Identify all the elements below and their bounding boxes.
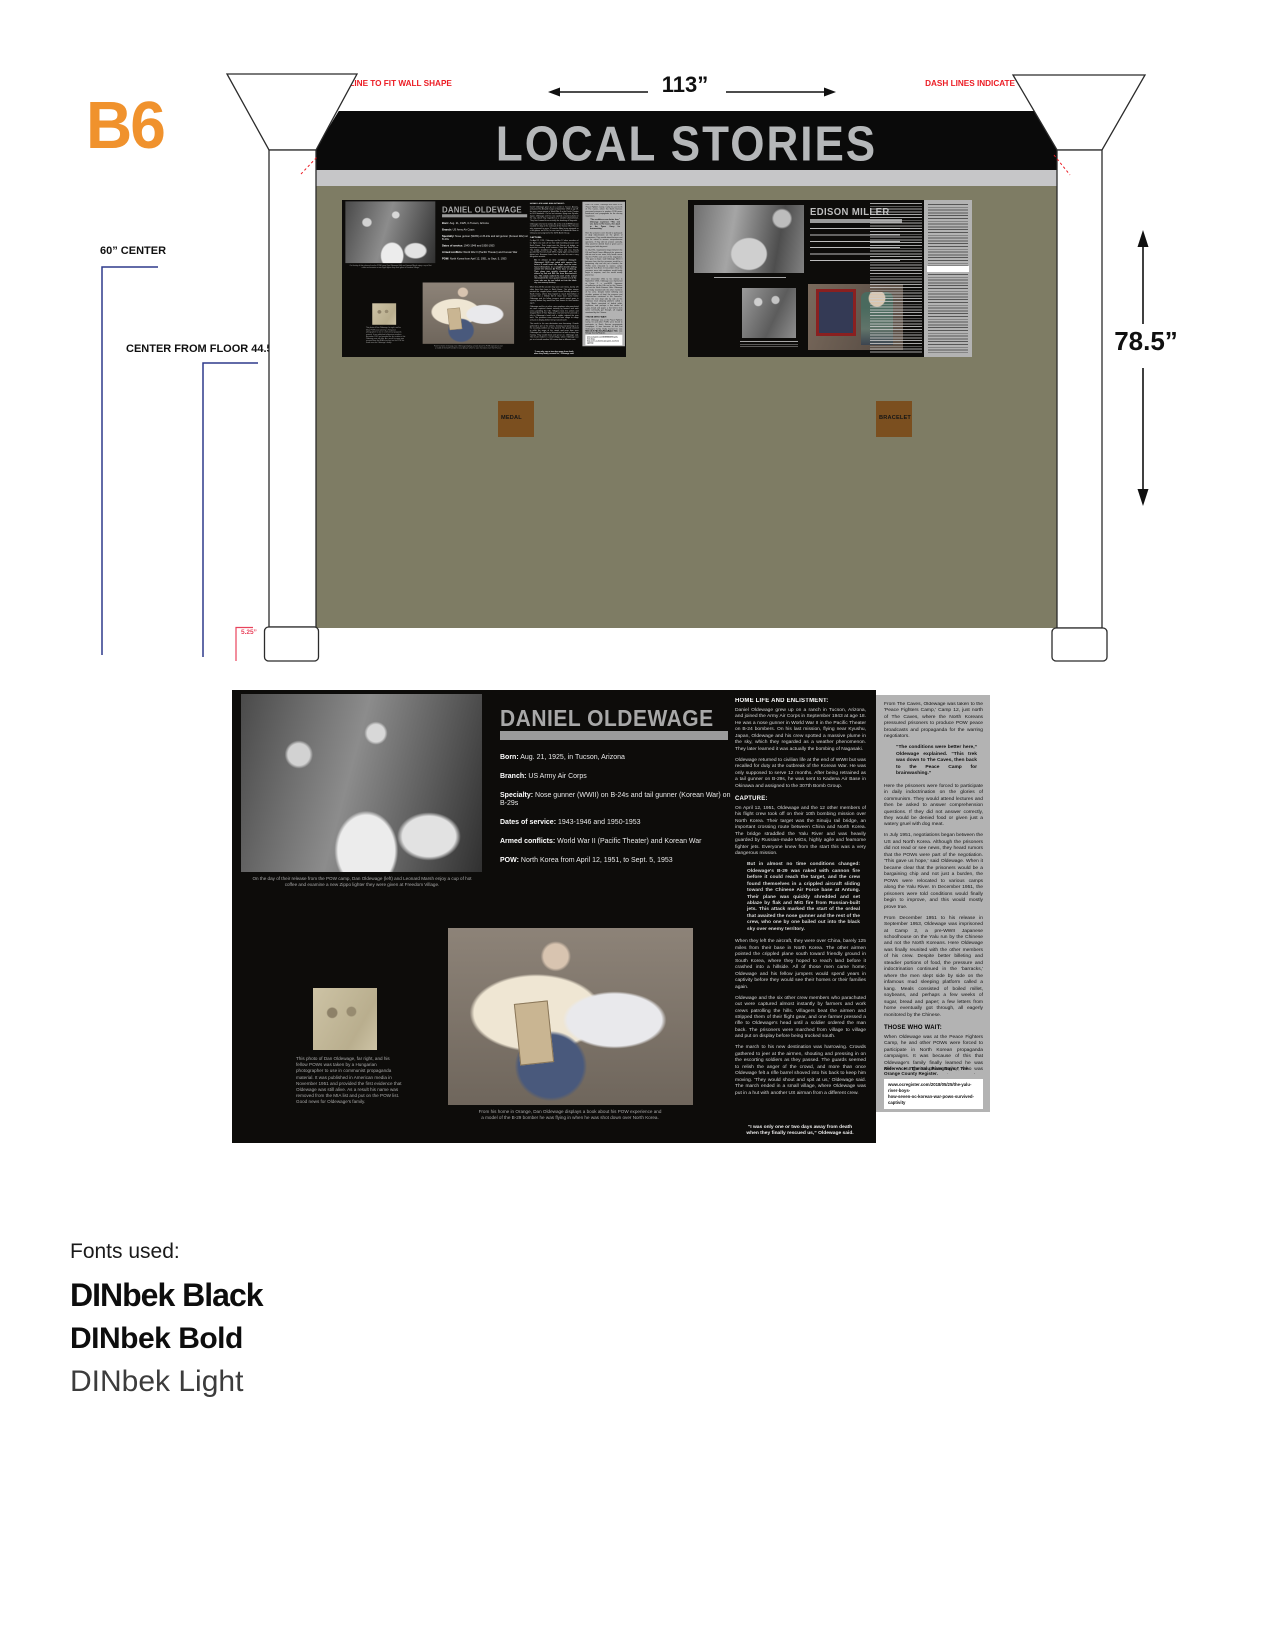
width-arrow-left-head: [548, 88, 560, 97]
bio-line: Dates of service: 1943-1946 and 1950-195…: [442, 245, 531, 248]
text-block-para: Here the prisoners were forced to partic…: [884, 784, 983, 829]
bio-line: Branch: US Army Air Corps: [500, 773, 738, 781]
home-photo: [448, 928, 693, 1105]
reference-line: Reference: “The Yalu River Boys,” The Or…: [884, 1066, 983, 1076]
edison-photo-caption-sim: [714, 277, 786, 279]
panel-black-area: On the day of their release from the POW…: [232, 690, 876, 1143]
sheet-label: B6: [86, 86, 164, 164]
panel-title-bar: [442, 214, 527, 217]
wall-gray-strip: [315, 170, 1058, 186]
panel-bio: Born: Aug. 21, 1925, in Tucson, ArizonaB…: [442, 222, 531, 264]
text-block-para: From December 1951 to his release in Sep…: [585, 278, 622, 314]
story-column-b: From The Caves, Oldewage was taken to th…: [585, 204, 622, 333]
story-column-a: HOME LIFE AND ENLISTMENT:Daniel Oldewage…: [530, 203, 579, 342]
font-sample-bold: DINbek Bold: [70, 1322, 243, 1356]
text-block-para: Oldewage returned to civilian life at th…: [735, 758, 866, 790]
base-dimension-label: 5.25”: [241, 629, 257, 636]
yalu-river-boys-book: [447, 308, 462, 331]
wall-header-band: LOCAL STORIES: [315, 111, 1058, 170]
height-arrow-up-head: [1138, 230, 1149, 247]
release-photo: [241, 694, 482, 872]
center-from-floor-note: CENTER FROM FLOOR 44.5”: [126, 343, 278, 355]
edison-panel-mini: EDISON MILLER: [688, 200, 972, 357]
text-block-para: When they left the aircraft, they were o…: [735, 939, 866, 991]
edison-gray-column: [924, 200, 972, 357]
edison-family-caption-sim: [740, 341, 798, 347]
width-dimension-label: 113”: [645, 72, 725, 98]
left-pillar-base: [265, 627, 319, 661]
center-60-line: [102, 267, 158, 655]
edison-gray-text-sim: [928, 204, 968, 353]
bracelet-swatch: BRACELET: [876, 401, 912, 437]
panel-black-area: On the day of their release from the POW…: [342, 200, 582, 357]
home-photo: [423, 282, 514, 343]
edison-text-column-sim: [870, 203, 922, 354]
medal-label: MEDAL: [501, 415, 522, 421]
panel-gray-column: From The Caves, Oldewage was taken to th…: [876, 695, 990, 1112]
text-block-blockquote: “The conditions were better here,” Oldew…: [896, 745, 977, 777]
citation-line-1: www.ocregister.com/2018/05/25/the-yalu-r…: [888, 1082, 979, 1094]
cutline-note-right: DASH LINES INDICATE CUT-LINE TO FIT WALL…: [922, 79, 1142, 88]
bio-line: Armed conflicts: World War II (Pacific T…: [442, 251, 531, 254]
text-block-para: The march to his new destination was har…: [530, 323, 579, 341]
closing-quote: “I was only one or two days away from de…: [746, 1125, 854, 1138]
reference-line: Reference: “The Yalu River Boys,” The Or…: [585, 330, 622, 333]
height-arrow-down-head: [1138, 489, 1149, 506]
edison-group-photo: [694, 205, 804, 273]
text-block-para: Oldewage returned to civilian life at th…: [530, 223, 579, 234]
text-block-para: From December 1951 to his release in Sep…: [884, 916, 983, 1020]
text-block-para: When they left the aircraft, they were o…: [530, 286, 579, 304]
text-block-heading: CAPTURE:: [530, 237, 579, 240]
text-block-para: Oldewage and the six other crew members …: [735, 996, 866, 1041]
newspaper-clipping-photo: [372, 303, 396, 324]
bio-line: Specialty: Nose gunner (WWII) on B-24s a…: [442, 235, 531, 241]
citation-box: www.ocregister.com/2018/05/25/the-yalu-r…: [585, 335, 622, 345]
text-block-heading: HOME LIFE AND ENLISTMENT:: [530, 203, 579, 206]
bio-line: Branch: US Army Air Corps: [442, 229, 531, 232]
left-pillar-shaft: [269, 150, 316, 627]
text-block-para: On April 12, 1951, Oldewage and the 12 o…: [735, 806, 866, 858]
text-block-para: Daniel Oldewage grew up on a ranch in Tu…: [530, 206, 579, 222]
yalu-river-boys-book: [513, 1001, 553, 1066]
edison-family-photo: [742, 288, 796, 338]
medal-swatch: MEDAL: [498, 401, 534, 437]
text-block-para: On April 12, 1951, Oldewage and the 12 o…: [530, 240, 579, 258]
release-photo-caption: On the day of their release from the POW…: [349, 264, 433, 268]
font-sample-black: DINbek Black: [70, 1277, 263, 1314]
text-block-para: From The Caves, Oldewage was taken to th…: [585, 204, 622, 217]
width-arrow-right-head: [824, 88, 836, 97]
clipping-caption: This photo of Dan Oldewage, far right, a…: [296, 1056, 402, 1106]
home-photo-caption: From his home in Orange, Dan Oldewage di…: [478, 1109, 662, 1121]
bio-line: Specialty: Nose gunner (WWII) on B-24s a…: [500, 792, 738, 808]
text-block-para: From The Caves, Oldewage was taken to th…: [884, 702, 983, 741]
text-block-heading: THOSE WHO WAIT:: [585, 316, 622, 319]
cutline-note-left: DASH LINES INDICATE CUT-LINE TO FIT WALL…: [235, 79, 455, 88]
framed-flag-icon: [816, 289, 856, 336]
text-block-para: Here the prisoners were forced to partic…: [585, 232, 622, 248]
bracelet-label: BRACELET: [879, 415, 911, 421]
bio-line: Born: Aug. 21, 1925, in Tucson, Arizona: [442, 222, 531, 225]
bio-line: Born: Aug. 21, 1925, in Tucson, Arizona: [500, 754, 738, 762]
right-pillar-base: [1052, 628, 1107, 661]
center-height-note: 60” CENTER: [100, 245, 166, 257]
release-photo: [345, 201, 435, 263]
citation-line-2: how-seven-oc-korean-war-pows-survived-ca…: [888, 1094, 979, 1106]
release-photo-caption: On the day of their release from the POW…: [250, 876, 474, 888]
right-pillar-shaft: [1057, 150, 1102, 628]
bio-line: POW: North Korea from April 12, 1951, to…: [442, 258, 531, 261]
panel-gray-column: From The Caves, Oldewage was taken to th…: [582, 202, 625, 347]
newspaper-clipping-photo: [313, 988, 377, 1050]
daniel-panel-mini: On the day of their release from the POW…: [342, 200, 626, 357]
bio-line: POW: North Korea from April 12, 1951, to…: [500, 857, 738, 865]
edison-citation-bar-sim: [927, 266, 969, 272]
column-b-footer: Reference: “The Yalu River Boys,” The Or…: [884, 1066, 983, 1109]
wall-title: LOCAL STORIES: [315, 117, 1058, 173]
column-b-footer: Reference: “The Yalu River Boys,” The Or…: [585, 330, 622, 345]
bio-line: Dates of service: 1943-1946 and 1950-195…: [500, 819, 738, 827]
text-block-para: In July 1951, negotiations began between…: [884, 833, 983, 911]
text-block-blockquote: But in almost no time conditions changed…: [534, 260, 576, 285]
clipping-caption: This photo of Dan Oldewage, far right, a…: [366, 327, 406, 344]
panel-title-bar: [500, 731, 728, 740]
daniel-panel-large: On the day of their release from the POW…: [232, 690, 990, 1143]
text-block-blockquote: “The conditions were better here,” Oldew…: [590, 219, 620, 230]
text-block-para: Oldewage and the six other crew members …: [530, 306, 579, 322]
daniel-panel-mini-content: On the day of their release from the POW…: [342, 200, 625, 357]
text-block-heading: HOME LIFE AND ENLISTMENT:: [735, 698, 866, 706]
fonts-used-heading: Fonts used:: [70, 1240, 180, 1264]
text-block-heading: CAPTURE:: [735, 796, 866, 804]
bio-line: Armed conflicts: World War II (Pacific T…: [500, 838, 738, 846]
citation-line-2: how-seven-oc-korean-war-pows-survived-ca…: [587, 340, 621, 344]
story-column-b: From The Caves, Oldewage was taken to th…: [884, 702, 983, 1074]
citation-box: www.ocregister.com/2018/05/25/the-yalu-r…: [884, 1079, 983, 1109]
panel-bio: Born: Aug. 21, 1925, in Tucson, ArizonaB…: [500, 754, 738, 876]
panel-title: DANIEL OLDEWAGE: [500, 706, 740, 733]
text-block-para: In July 1951, negotiations began between…: [585, 250, 622, 277]
font-sample-light: DINbek Light: [70, 1365, 243, 1399]
closing-quote: “I was only one or two days away from de…: [534, 351, 574, 356]
story-column-a: HOME LIFE AND ENLISTMENT:Daniel Oldewage…: [735, 698, 866, 1098]
height-dimension-label: 78.5”: [1100, 326, 1192, 357]
home-photo-caption: From his home in Orange, Dan Oldewage di…: [434, 345, 503, 349]
text-block-heading: THOSE WHO WAIT:: [884, 1025, 983, 1033]
text-block-blockquote: But in almost no time conditions changed…: [747, 862, 860, 933]
spec-sheet-page: B6 DASH LINES INDICATE CUT-LINE TO FIT W…: [0, 0, 1275, 1650]
center-floor-line: [203, 363, 258, 657]
text-block-para: Daniel Oldewage grew up on a ranch in Tu…: [735, 708, 866, 753]
text-block-para: The march to his new destination was har…: [735, 1045, 866, 1097]
